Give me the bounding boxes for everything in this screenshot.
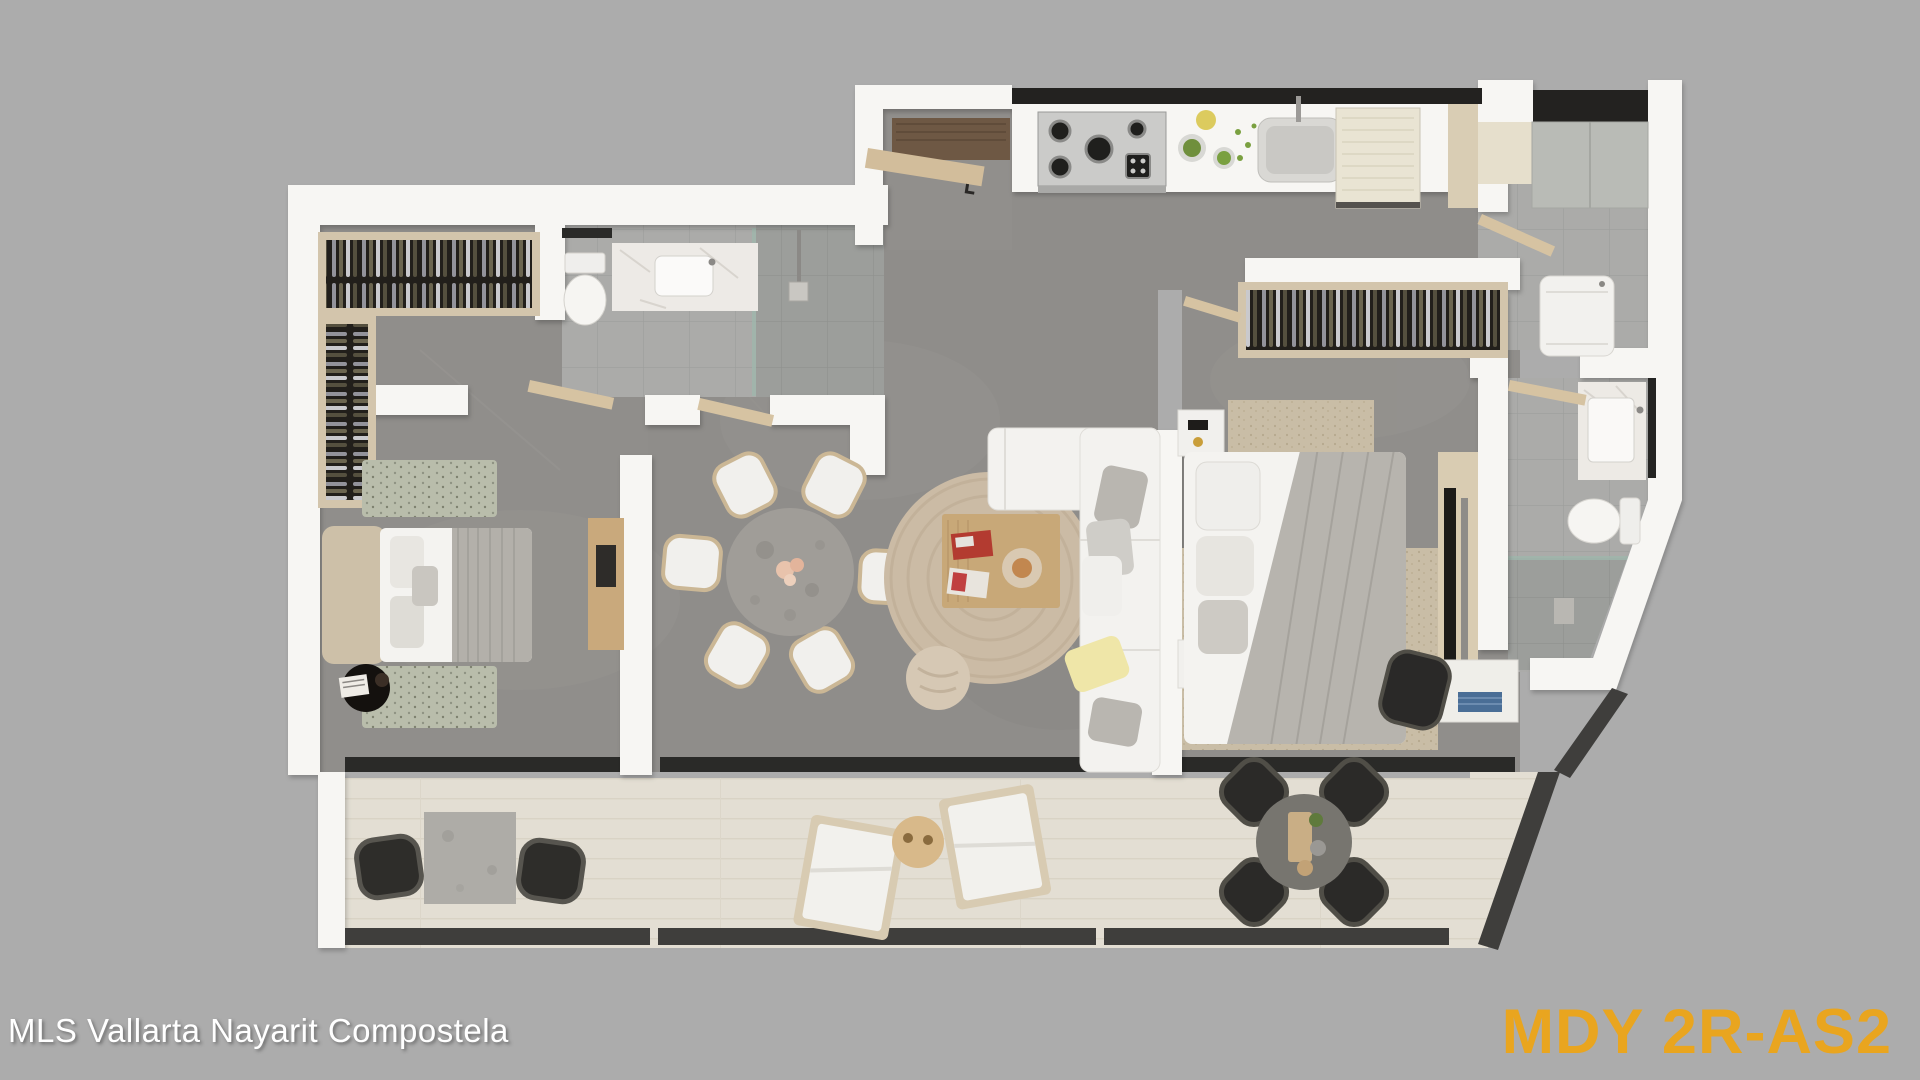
railing-segment-3 (1104, 928, 1449, 945)
sofa-pillow-gray-3 (1087, 696, 1144, 748)
closet-clothes-left (326, 324, 368, 500)
lemon (1196, 110, 1216, 130)
master-pillow-3 (1198, 600, 1248, 654)
master-pillow-1 (1196, 462, 1260, 530)
ensuite-shower-glass (1508, 556, 1628, 560)
utility-counter (1478, 122, 1532, 184)
kitchen-sink-basin (1266, 126, 1334, 174)
bath-niche-strip (562, 228, 612, 238)
croissant (1012, 558, 1032, 578)
master-desk (1440, 660, 1518, 722)
lounge-chair-2 (938, 783, 1052, 910)
terrace-side-table (892, 816, 944, 868)
sliding-door-track-living (660, 757, 1100, 772)
ensuite-toilet-bowl (1568, 499, 1620, 543)
nightstand-vase (1193, 437, 1203, 447)
shower-head (789, 282, 808, 301)
ensuite-window-strip (1648, 378, 1656, 478)
ensuite-faucet (1637, 407, 1644, 414)
side-table-cup (375, 673, 389, 687)
nightstand-decor (1188, 420, 1208, 430)
bed1-headboard (322, 526, 386, 664)
bath-faucet (709, 259, 716, 266)
ensuite-sink (1588, 398, 1634, 462)
floor-plan-render (0, 0, 1920, 1080)
shower-arm (797, 230, 801, 284)
toilet-bowl (564, 275, 606, 325)
terrace-square-table (424, 812, 516, 904)
ensuite-shower-fixture (1554, 598, 1574, 624)
main-bathroom-shower-floor (756, 225, 884, 397)
fridge (1336, 108, 1420, 208)
bath-sink (655, 256, 713, 296)
kitchen-faucet (1296, 96, 1301, 122)
watermark-text: MLS Vallarta Nayarit Compostela (8, 1012, 509, 1050)
pouf (906, 646, 970, 710)
bed1-pillow-accent (412, 566, 438, 606)
sliding-door-track-bedroom1 (345, 757, 648, 772)
master-headboard (1228, 400, 1374, 454)
tv-screen (1444, 488, 1456, 688)
wall-terrace-left (318, 772, 345, 948)
wall-left (288, 185, 320, 775)
master-closet-clothes (1246, 290, 1500, 350)
closet-clothes-top (326, 240, 532, 308)
stove-vent (1038, 186, 1166, 193)
nightstand-top (1178, 410, 1224, 456)
wall-bedroom1-right (620, 455, 652, 775)
toilet-tank (565, 253, 605, 273)
kitchen-top-strip (1012, 88, 1482, 104)
bed1-blanket (452, 520, 542, 670)
floor-plan-page: MLS Vallarta Nayarit Compostela MDY 2R-A… (0, 0, 1920, 1080)
sofa-pillow-white (1082, 556, 1122, 616)
desk-books (1458, 692, 1502, 712)
utility-top-strip (1533, 90, 1648, 124)
wall-entry-top (855, 85, 1012, 109)
railing-segment-1 (345, 928, 650, 945)
dining-chair (662, 535, 722, 592)
rug-above-bed (362, 460, 497, 517)
desk-laptop (596, 545, 616, 587)
fridge-gap (1336, 202, 1420, 208)
soundbar (1461, 498, 1468, 682)
lounge-chair-1 (793, 814, 907, 941)
wall-bath-bottom-a (645, 395, 700, 425)
kitchen-end-panel (1448, 104, 1478, 208)
wall-ensuite-bottom (1530, 658, 1616, 690)
washer-knob (1599, 281, 1605, 287)
tray-plant (1309, 813, 1323, 827)
terrace-chair-left (354, 834, 423, 900)
wall-under-closet (288, 385, 468, 415)
plan-code-text: MDY 2R-AS2 (1502, 996, 1892, 1068)
railing-diagonal-upper (1554, 688, 1628, 778)
wall-top-left-wing (288, 185, 888, 225)
terrace-tray (1288, 812, 1312, 862)
ensuite-toilet-tank (1620, 498, 1640, 544)
wall-master-right (1478, 378, 1508, 650)
terrace-chair-right (516, 838, 585, 904)
master-pillow-2 (1196, 536, 1254, 596)
